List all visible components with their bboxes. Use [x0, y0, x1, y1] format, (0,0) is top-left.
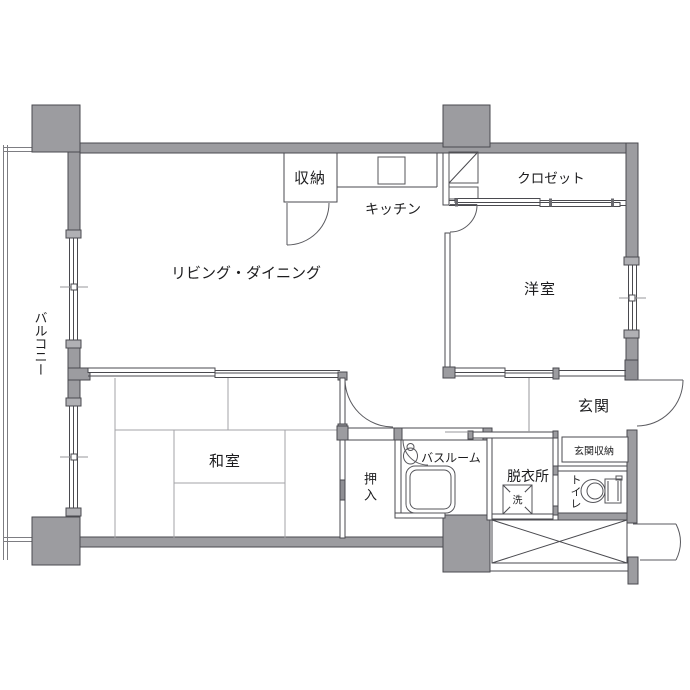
closet-sliding-door [449, 199, 626, 207]
label-toilet: トイレ [569, 474, 581, 510]
shower-fixture [404, 444, 418, 465]
bath-bottom-wall [395, 513, 445, 518]
label-kitchen: キッチン [365, 201, 421, 217]
label-entrance-storage: 玄関収納 [574, 445, 614, 458]
oshiire-bath-top-wall [337, 428, 490, 440]
bathtub [406, 466, 455, 513]
western-door-arc [450, 205, 477, 233]
top-wall [68, 143, 638, 153]
left-wall-upper [68, 143, 80, 234]
label-closet: クロゼット [517, 171, 585, 186]
label-japanese: 和室 [209, 453, 241, 470]
toilet-top-wall [558, 466, 627, 471]
right-wall-upper [626, 143, 638, 261]
storage-door-arc [287, 203, 329, 245]
window-balcony-upper [60, 230, 88, 348]
column-bottom-left [32, 517, 80, 565]
fridge-space [443, 152, 478, 205]
right-wall-bottom-stub [628, 557, 638, 584]
stove-sink-unit [378, 157, 405, 184]
service-hatch-box [490, 520, 628, 571]
column-top-mid [443, 105, 490, 147]
storage-closet [284, 153, 337, 245]
label-bathroom: バスルーム [421, 451, 481, 465]
window-balcony-lower [60, 398, 88, 516]
right-wall-column [625, 360, 638, 380]
hall-door-arc [345, 379, 393, 427]
bath-right-wall [487, 438, 492, 520]
service-door [633, 524, 681, 560]
label-entrance: 玄関 [578, 398, 610, 415]
western-west-wall [445, 233, 450, 367]
floor-plan: リビング・ダイニング 収納 キッチン クロゼット 洋室 和室 バスルーム 脱衣所… [0, 0, 690, 690]
label-dressing: 脱衣所 [507, 468, 549, 484]
toilet-fixture [581, 476, 622, 503]
kitchen-counter [337, 153, 437, 187]
label-oshiire: 押入 [362, 472, 377, 504]
oshiire-bath-divider [395, 440, 401, 515]
entrance-door-arc [637, 380, 683, 426]
left-wall-junction-stub [68, 368, 90, 380]
label-living: リビング・ダイニング [171, 265, 321, 282]
bottom-wall [80, 537, 443, 547]
label-western: 洋室 [524, 281, 556, 298]
window-western-room [619, 257, 646, 338]
dressing-top-wall [470, 432, 558, 438]
bottom-right-block [443, 515, 490, 572]
column-top-left [32, 105, 80, 152]
balcony-rail [3, 145, 32, 560]
dressing-bottom-wall [492, 514, 558, 519]
toilet-bottom-wall [558, 513, 627, 520]
floor-plan-page: リビング・ダイニング 収納 キッチン クロゼット 洋室 和室 バスルーム 脱衣所… [0, 0, 690, 690]
label-storage: 収納 [294, 170, 326, 187]
western-sw-corner-block [443, 367, 455, 378]
japanese-east-wall [340, 378, 345, 538]
label-balcony: バルコニー [33, 311, 48, 376]
entrance-area [445, 378, 683, 462]
label-washer: 洗 [513, 495, 523, 507]
